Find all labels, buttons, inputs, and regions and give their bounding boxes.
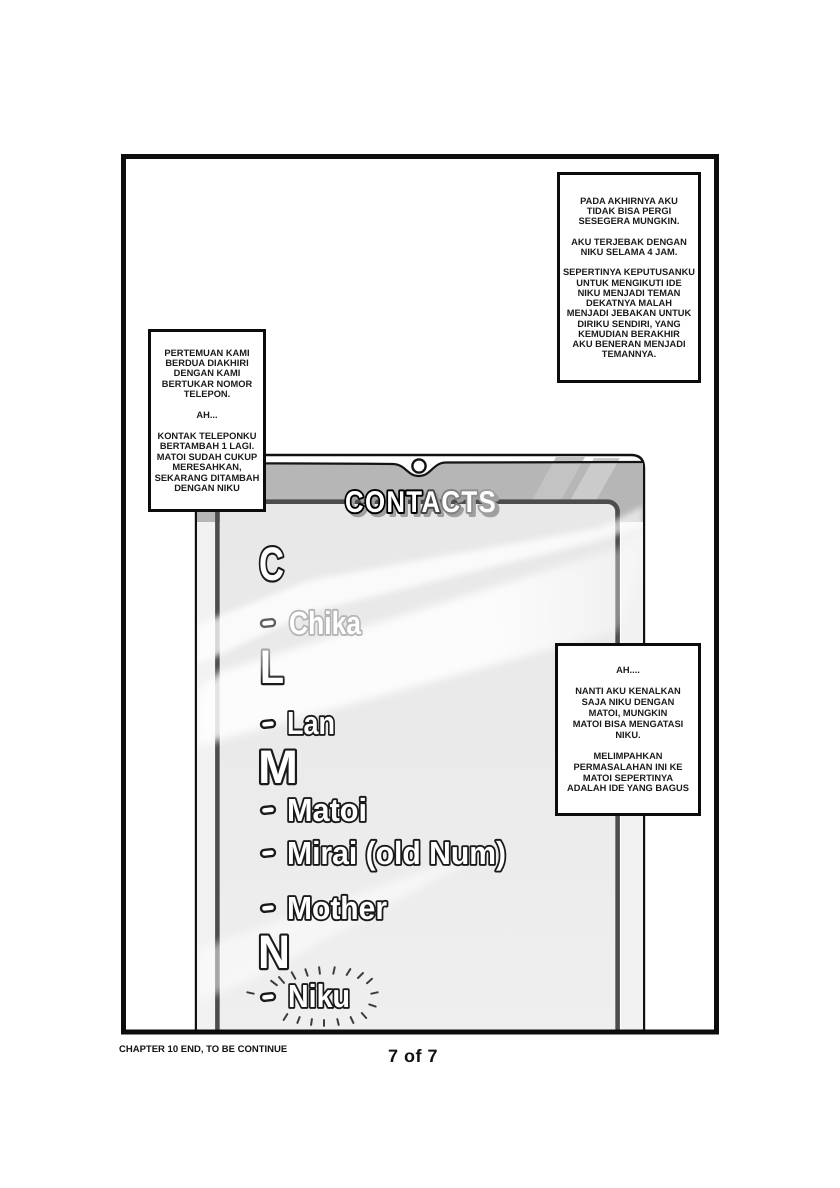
svg-text:N: N	[258, 925, 290, 978]
svg-text:Mother: Mother	[287, 890, 387, 926]
svg-text:Matoi: Matoi	[287, 792, 367, 828]
svg-text:Chika: Chika	[289, 605, 361, 641]
svg-text:Niku: Niku	[288, 978, 350, 1014]
svg-text:Mirai (old Num): Mirai (old Num)	[287, 835, 506, 871]
svg-text:L: L	[260, 640, 284, 693]
svg-text:Lan: Lan	[287, 705, 335, 741]
svg-text:CONTACTS: CONTACTS	[345, 486, 497, 519]
svg-text:M: M	[258, 740, 298, 793]
svg-text:C: C	[259, 537, 284, 590]
